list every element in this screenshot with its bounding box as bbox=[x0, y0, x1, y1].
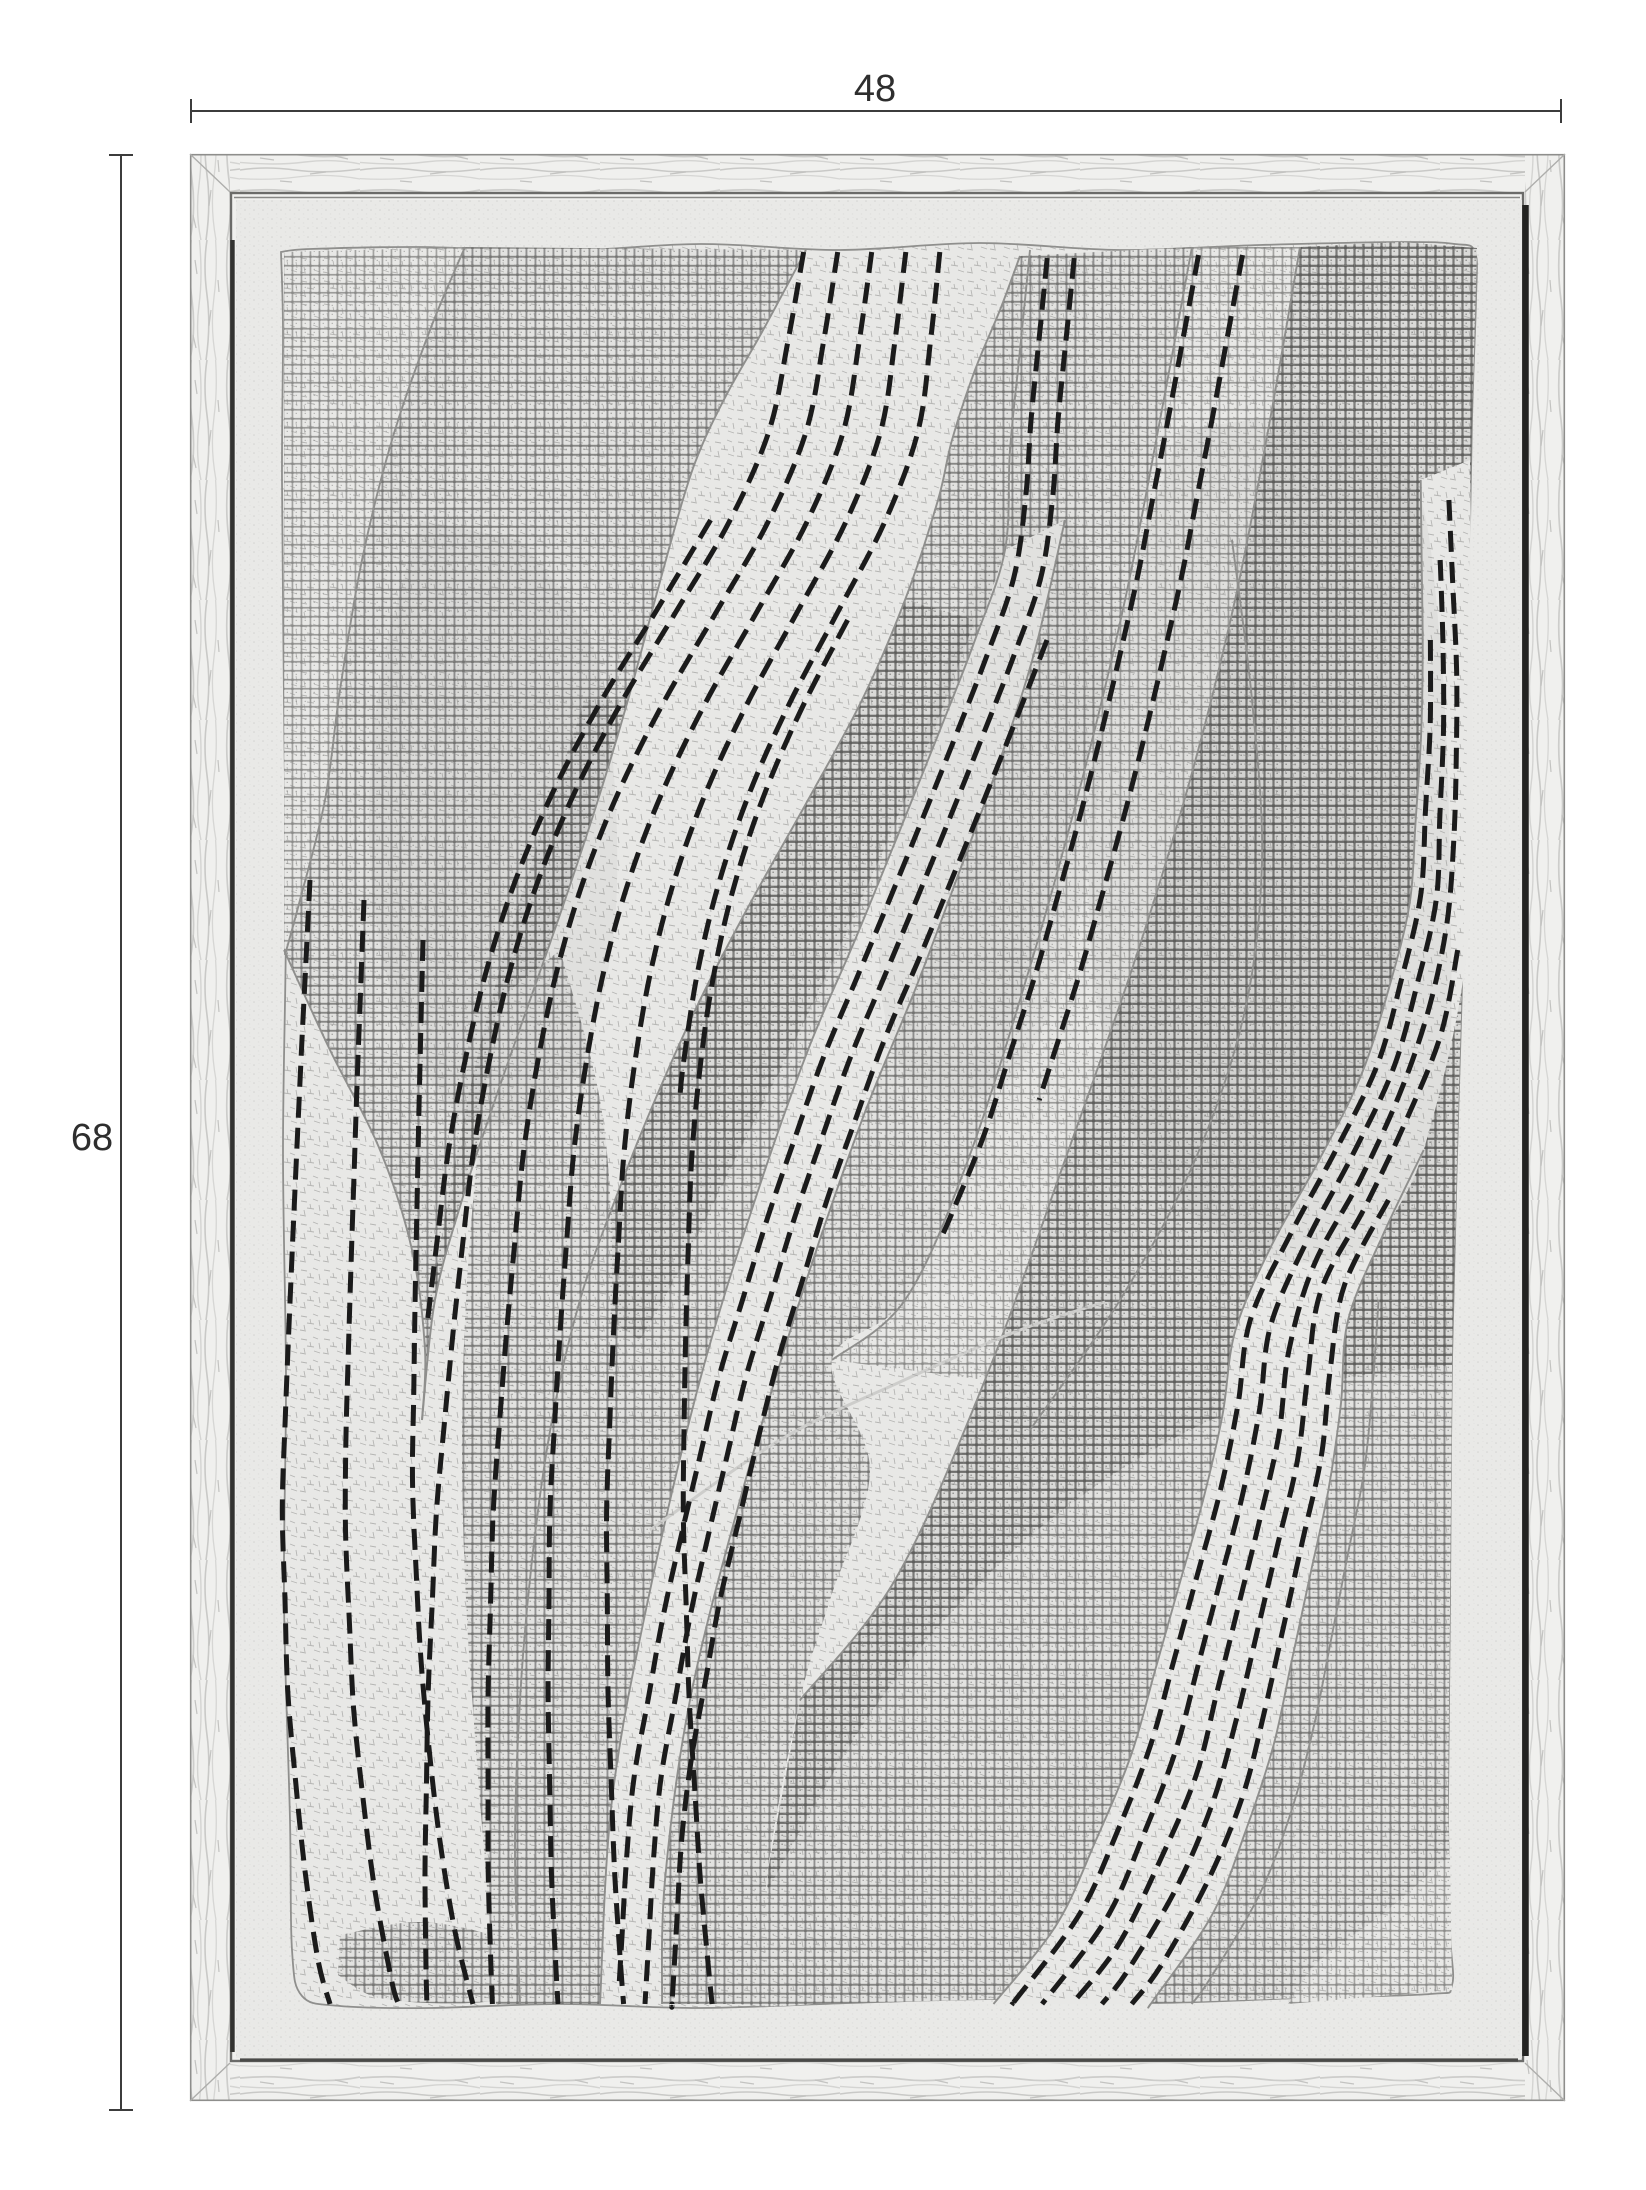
svg-text:68: 68 bbox=[71, 1117, 113, 1159]
svg-text:48: 48 bbox=[854, 68, 896, 110]
